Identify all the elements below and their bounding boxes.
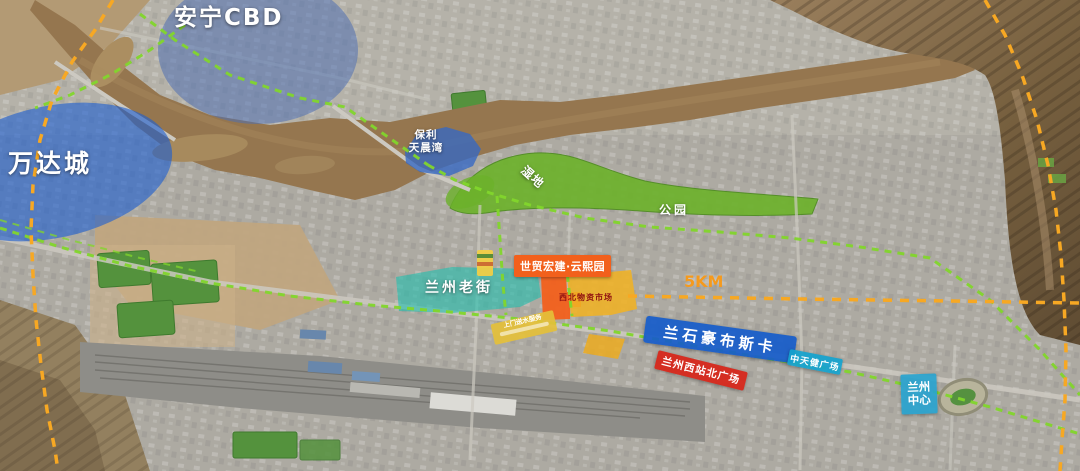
label-anning-cbd: 安宁CBD — [174, 6, 284, 31]
label-old-street: 兰州老街 — [392, 281, 526, 296]
label-5km: 5KM — [684, 273, 723, 291]
label-wanda-city: 万达城 — [8, 150, 92, 178]
label-nw-market: 西北物资市场 — [559, 292, 613, 303]
label-poly-line2: 天晨湾 — [409, 142, 444, 154]
label-poly-tianchenwan: 保利 天晨湾 — [399, 129, 453, 154]
label-project: 世贸宏建·云熙园 — [514, 255, 611, 277]
label-lanzhou-center-line2: 中心 — [908, 394, 931, 408]
location-map: 安宁CBD 万达城 保利 天晨湾 湿地 公园 兰州老街 世贸宏建·云熙园 西北物… — [0, 0, 1080, 471]
small-yellow-tag — [477, 250, 493, 276]
label-park: 公园 — [659, 204, 689, 217]
label-poly-line1: 保利 — [415, 129, 438, 141]
label-lanzhou-center: 兰州 中心 — [900, 373, 937, 414]
